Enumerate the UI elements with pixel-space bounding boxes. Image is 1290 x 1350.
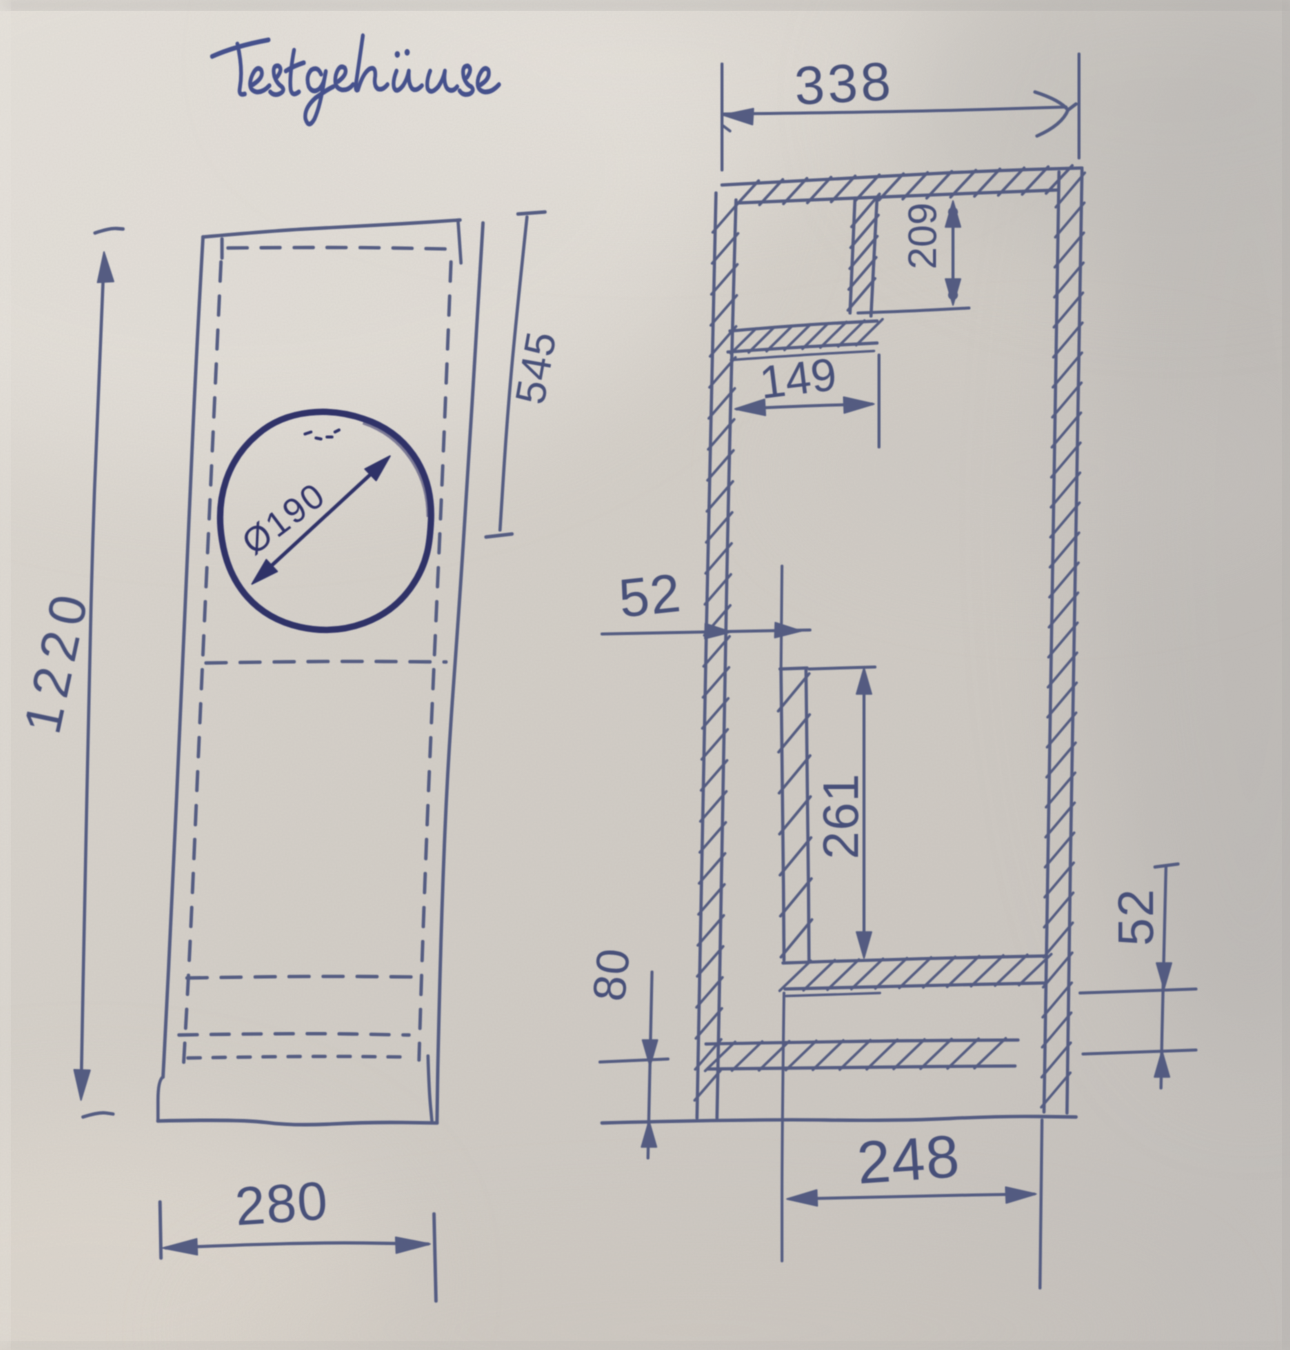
- svg-text:209: 209: [901, 203, 945, 270]
- svg-text:261: 261: [813, 773, 869, 859]
- svg-text:80: 80: [582, 945, 639, 1003]
- svg-text:52: 52: [616, 563, 684, 629]
- svg-text:280: 280: [233, 1171, 330, 1237]
- svg-text:338: 338: [793, 51, 895, 116]
- svg-text:248: 248: [855, 1123, 963, 1197]
- svg-text:149: 149: [757, 348, 840, 409]
- svg-text:52: 52: [1108, 888, 1164, 946]
